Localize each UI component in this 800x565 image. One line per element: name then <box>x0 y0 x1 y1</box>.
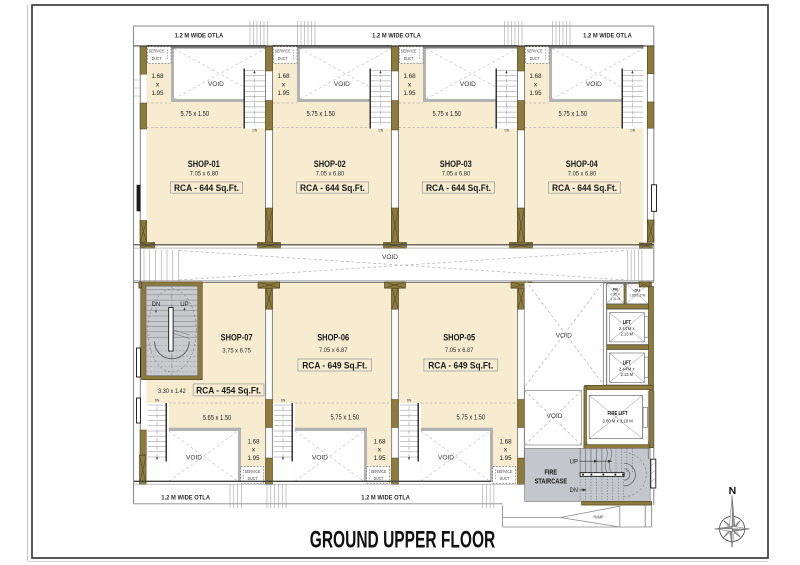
svg-text:RCA - 649 Sq.Ft.: RCA - 649 Sq.Ft. <box>428 360 493 370</box>
svg-text:FIRE: FIRE <box>545 468 558 477</box>
svg-text:SERVICE: SERVICE <box>527 48 543 53</box>
svg-text:5.75 x 1.50: 5.75 x 1.50 <box>457 415 486 422</box>
svg-text:1.68: 1.68 <box>404 73 416 80</box>
svg-text:1.2 M WIDE OTLA: 1.2 M WIDE OTLA <box>175 33 224 40</box>
svg-text:SHOP-07: SHOP-07 <box>221 333 253 343</box>
svg-text:0.9X X: 0.9X X <box>611 292 621 296</box>
svg-text:1.21 M: 1.21 M <box>611 297 621 301</box>
svg-text:SHOP-02: SHOP-02 <box>314 159 346 169</box>
svg-text:1.68: 1.68 <box>530 73 542 80</box>
svg-text:1.2 M WIDE OTLA: 1.2 M WIDE OTLA <box>372 33 421 40</box>
svg-text:N: N <box>729 485 737 497</box>
svg-text:5.75 x 1.50: 5.75 x 1.50 <box>331 415 360 422</box>
svg-text:VOID: VOID <box>586 81 602 88</box>
svg-text:5.75 x 1.50: 5.75 x 1.50 <box>559 111 588 118</box>
svg-text:VOID: VOID <box>312 455 328 462</box>
svg-text:1.68: 1.68 <box>374 438 386 445</box>
svg-text:DUCT: DUCT <box>530 56 540 61</box>
svg-text:VOID: VOID <box>556 333 572 340</box>
svg-text:DUCT: DUCT <box>152 56 162 61</box>
svg-text:RCA - 644 Sq.Ft.: RCA - 644 Sq.Ft. <box>174 183 239 193</box>
svg-text:x: x <box>156 81 160 88</box>
svg-text:2.44 M x: 2.44 M x <box>619 366 635 372</box>
svg-text:SHOP-01: SHOP-01 <box>188 159 220 169</box>
svg-text:VOID: VOID <box>186 455 202 462</box>
svg-text:1.95: 1.95 <box>152 90 164 97</box>
svg-text:DN: DN <box>631 129 636 133</box>
svg-text:VOID: VOID <box>334 81 350 88</box>
svg-text:2.13 M: 2.13 M <box>621 332 633 338</box>
svg-text:RCA - 644 Sq.Ft.: RCA - 644 Sq.Ft. <box>300 183 365 193</box>
svg-text:DN: DN <box>505 129 510 133</box>
svg-text:7.05 x 6.80: 7.05 x 6.80 <box>316 171 345 178</box>
svg-text:7.05 x 6.80: 7.05 x 6.80 <box>190 171 219 178</box>
svg-text:7.05 x 6.87: 7.05 x 6.87 <box>319 347 348 354</box>
svg-text:RCA - 649 Sq.Ft.: RCA - 649 Sq.Ft. <box>302 360 367 370</box>
svg-text:DN: DN <box>570 487 579 494</box>
svg-text:DN: DN <box>253 129 258 133</box>
svg-text:DUCT: DUCT <box>278 56 288 61</box>
svg-text:SERVICE: SERVICE <box>371 469 387 474</box>
svg-text:DUCT: DUCT <box>248 476 258 481</box>
svg-text:DN: DN <box>152 301 161 308</box>
svg-text:DN: DN <box>379 129 384 133</box>
svg-text:SERVICE: SERVICE <box>149 48 165 53</box>
svg-text:x: x <box>534 81 538 88</box>
svg-text:7.05 x 6.80: 7.05 x 6.80 <box>442 171 471 178</box>
svg-text:x: x <box>504 447 508 454</box>
svg-text:STAIRCASE: STAIRCASE <box>535 477 567 486</box>
svg-text:UP: UP <box>570 458 579 465</box>
svg-text:RAMP: RAMP <box>594 514 604 519</box>
svg-text:3.75 x 6.75: 3.75 x 6.75 <box>222 347 251 354</box>
svg-text:1.68: 1.68 <box>248 438 260 445</box>
svg-text:FB: FB <box>613 288 619 292</box>
svg-text:1.95: 1.95 <box>530 90 542 97</box>
svg-text:1.95: 1.95 <box>500 455 512 462</box>
svg-text:SERVICE: SERVICE <box>245 469 261 474</box>
svg-text:1.95: 1.95 <box>248 455 260 462</box>
svg-text:1.2 M WIDE OTLA: 1.2 M WIDE OTLA <box>161 495 210 502</box>
svg-text:3.30 x 1.42: 3.30 x 1.42 <box>158 388 186 395</box>
svg-text:7.05 x 6.80: 7.05 x 6.80 <box>568 171 597 178</box>
svg-text:VOID: VOID <box>460 81 476 88</box>
svg-text:1.68: 1.68 <box>152 73 164 80</box>
svg-text:x: x <box>282 81 286 88</box>
svg-text:x: x <box>378 447 382 454</box>
svg-text:LIFT: LIFT <box>623 361 632 367</box>
svg-text:VOID: VOID <box>438 455 454 462</box>
svg-text:DN: DN <box>407 398 412 402</box>
svg-text:SHOP-05: SHOP-05 <box>443 333 475 343</box>
svg-text:1.68: 1.68 <box>500 438 512 445</box>
svg-text:SHOP-06: SHOP-06 <box>317 333 349 343</box>
svg-text:SHOP-04: SHOP-04 <box>566 159 598 169</box>
svg-text:DN: DN <box>155 398 160 402</box>
svg-text:DU: DU <box>635 289 641 293</box>
svg-text:5.65 x 1.50: 5.65 x 1.50 <box>203 415 232 422</box>
svg-text:x: x <box>408 81 412 88</box>
svg-text:VOID: VOID <box>382 254 398 261</box>
svg-text:7.05 x 6.87: 7.05 x 6.87 <box>445 347 474 354</box>
svg-text:RCA - 454 Sq.Ft.: RCA - 454 Sq.Ft. <box>196 385 261 395</box>
svg-text:5.75 x 1.50: 5.75 x 1.50 <box>433 111 462 118</box>
svg-text:1.35X1.27M: 1.35X1.27M <box>629 294 645 298</box>
svg-text:DUCT: DUCT <box>374 476 384 481</box>
svg-text:5.75 x 1.50: 5.75 x 1.50 <box>181 111 210 118</box>
svg-text:SERVICE: SERVICE <box>401 48 417 53</box>
svg-text:GROUND UPPER FLOOR: GROUND UPPER FLOOR <box>310 527 496 554</box>
svg-text:LIFT: LIFT <box>623 320 632 326</box>
svg-text:1.95: 1.95 <box>278 90 290 97</box>
svg-text:VOID: VOID <box>547 413 563 420</box>
svg-text:SERVICE: SERVICE <box>497 469 513 474</box>
svg-text:1.95: 1.95 <box>374 455 386 462</box>
svg-text:UP: UP <box>180 301 189 308</box>
svg-text:RCA - 644 Sq.Ft.: RCA - 644 Sq.Ft. <box>552 183 617 193</box>
svg-text:2.13 M: 2.13 M <box>621 372 633 378</box>
svg-text:1.68: 1.68 <box>278 73 290 80</box>
svg-text:1.2 M WIDE OTLA: 1.2 M WIDE OTLA <box>583 33 632 40</box>
svg-text:2.44 M x: 2.44 M x <box>619 326 635 332</box>
svg-text:1.2 M WIDE OTLA: 1.2 M WIDE OTLA <box>361 495 410 502</box>
svg-text:5.75 x 1.50: 5.75 x 1.50 <box>307 111 336 118</box>
svg-text:FIRE LIFT: FIRE LIFT <box>608 411 629 417</box>
svg-text:VOID: VOID <box>208 81 224 88</box>
svg-text:SERVICE: SERVICE <box>275 48 291 53</box>
svg-text:SHOP-03: SHOP-03 <box>440 159 472 169</box>
svg-text:DUCT: DUCT <box>404 56 414 61</box>
svg-text:DN: DN <box>281 398 286 402</box>
svg-text:1.95: 1.95 <box>404 90 416 97</box>
svg-text:RCA - 644 Sq.Ft.: RCA - 644 Sq.Ft. <box>426 183 491 193</box>
svg-text:3.60 M x 3.10 M: 3.60 M x 3.10 M <box>602 418 632 423</box>
svg-text:x: x <box>252 447 256 454</box>
svg-text:DUCT: DUCT <box>500 476 510 481</box>
